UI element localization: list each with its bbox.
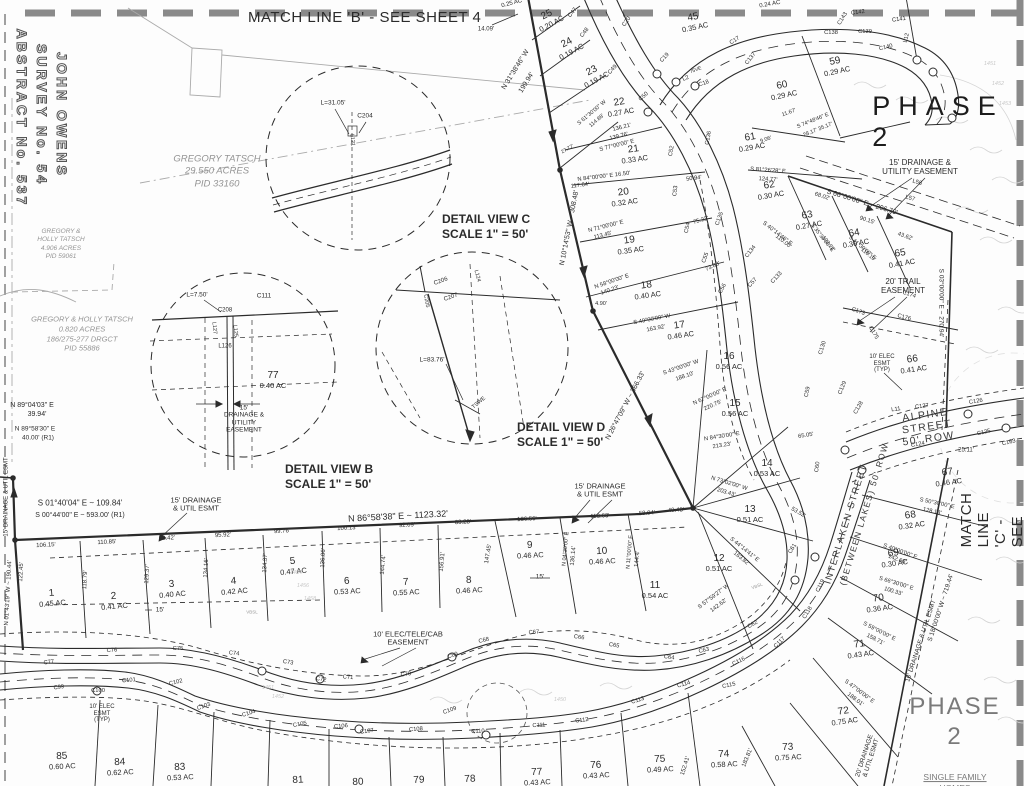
detail-view-c-title: DETAIL VIEW C SCALE 1" = 50' [442,212,530,242]
plat-sheet: MATCH LINE 'B' - SEE SHEET 4 MATCH LINE … [0,0,1024,786]
lot-label: 190.35 AC [616,234,645,256]
lot-acreage: 0.43 AC [524,778,551,786]
owner-label-tatsch-main: GREGORY TATSCH 29.550 ACRES PID 33160 [173,153,260,190]
lot-acreage: 0.51 AC [706,564,733,572]
lot-acreage: 0.49 AC [647,765,674,774]
phase2-summary: PHASE 2 SINGLE FAMILY HOMES 16.7 ACRES [909,672,1000,786]
lot-acreage: 0.53 AC [334,587,361,596]
lot-acreage: 0.58 AC [711,760,738,769]
lot-label: 20.41 AC [100,591,128,612]
lot-label: 80.46 AC [455,575,483,595]
lot-acreage: 0.51 AC [737,515,764,523]
lot-number: 80 [352,777,364,786]
lot-label: 180.40 AC [633,279,662,301]
lot-number: 81 [292,775,304,786]
lot-label: 10.45 AC [38,588,66,609]
lot-label: 140.53 AC [754,459,781,477]
street-edges [0,0,1024,739]
lot-label: 80 [352,777,364,786]
lot-label: 840.62 AC [106,757,134,777]
lot-acreage: 0.54 AC [642,591,669,599]
lot-label: 79 [413,775,425,786]
detail-view-b-title: DETAIL VIEW B SCALE 1" = 50' [285,462,373,492]
lot-number: 11 [642,581,669,592]
phase2-summary-title: PHASE 2 [909,692,1000,752]
lot-acreage: 0.46 AC [517,551,544,560]
lot-label: 120.51 AC [706,554,733,572]
survey-abstract-number: ABSTRACT No. 537 [14,29,30,208]
lot-label: 760.43 AC [582,760,610,780]
leader-lines [145,14,925,666]
lot-label: 150.56 AC [722,399,749,417]
lot-acreage: 0.56 AC [716,362,743,370]
owner-label-tatsch-third: GREGORY & HOLLY TATSCH 0.820 ACRES 186/2… [31,315,133,354]
phase2-summary-sub: SINGLE FAMILY HOMES [909,772,1000,786]
phase-boundary [0,0,952,786]
lot-number: 16 [716,352,743,363]
lot-number: 15 [722,399,749,410]
lot-acreage: 0.56 AC [722,409,749,417]
survey-number: SURVEY No. 54 [34,44,50,186]
lot-label: 60.53 AC [333,576,361,596]
lot-number: 12 [706,554,733,565]
lot-acreage: 0.43 AC [583,771,610,780]
owner-label-tatsch-small: GREGORY & HOLLY TATSCH 4.906 ACRES PID 5… [37,228,84,262]
lot-label: 50.47 AC [279,556,307,577]
lot-label: 70.55 AC [392,577,420,597]
lot-label: 700.36 AC [865,592,894,614]
lot-acreage: 0.55 AC [393,588,420,597]
survey-owner-name: JOHN OWENS [54,52,70,178]
lot-label: 78 [464,774,476,785]
lot-label: 81 [292,775,304,786]
lot-label: 730.75 AC [774,742,802,762]
lot-label: 130.51 AC [737,505,764,523]
lot-label: 660.41 AC [899,353,928,375]
lot-label: 770.40 AC [260,371,287,389]
lot-label: 200.32 AC [610,186,639,208]
lot-acreage: 0.62 AC [107,768,134,777]
lot-label: 210.33 AC [620,143,649,165]
easement-lines [0,156,1024,786]
street-centerlines [0,0,1024,731]
detail-view-d-title: DETAIL VIEW D SCALE 1" = 50' [517,420,605,450]
lot-label: 170.46 AC [666,319,695,341]
lot-lines [80,6,988,786]
lot-label: 160.56 AC [716,352,743,370]
lot-label: 690.30 AC [880,547,909,569]
lot-label: 40.42 AC [220,576,248,597]
lot-acreage: 0.40 AC [260,381,287,389]
lot-label: 30.40 AC [158,579,186,600]
lot-acreage: 0.53 AC [754,469,781,477]
lot-label: 740.58 AC [710,749,738,769]
match-line-b-label: MATCH LINE 'B' - SEE SHEET 4 [248,9,481,26]
lot-number: 77 [260,371,287,382]
lot-acreage: 0.46 AC [456,586,483,595]
lot-number: 79 [413,775,425,786]
lot-label: 90.46 AC [516,540,544,560]
lot-label: 680.32 AC [897,509,926,531]
lot-label: 710.43 AC [846,638,875,660]
lot-label: 110.54 AC [642,581,669,599]
lot-label: 750.49 AC [646,754,674,774]
lot-acreage: 0.60 AC [49,762,76,771]
lot-label: 720.75 AC [830,705,859,727]
lot-label: 770.43 AC [523,767,551,786]
lot-label: 830.53 AC [166,762,194,782]
lot-acreage: 0.46 AC [589,557,616,566]
match-line-c-label: MATCH LINE 'C' - SEE SHEET 5 [958,493,1024,548]
lot-label: 850.60 AC [48,751,76,771]
lot-number: 78 [464,774,476,785]
sheet-borders [5,0,1024,786]
lot-label: 100.46 AC [588,546,616,566]
plat-linework [0,0,1024,786]
lot-label: 670.46 AC [934,466,963,488]
lot-acreage: 0.75 AC [775,753,802,762]
phase2-title: PHASE 2 [872,91,1004,153]
lot-number: 13 [737,505,764,516]
lot-number: 14 [754,459,781,470]
lot-acreage: 0.53 AC [167,773,194,782]
